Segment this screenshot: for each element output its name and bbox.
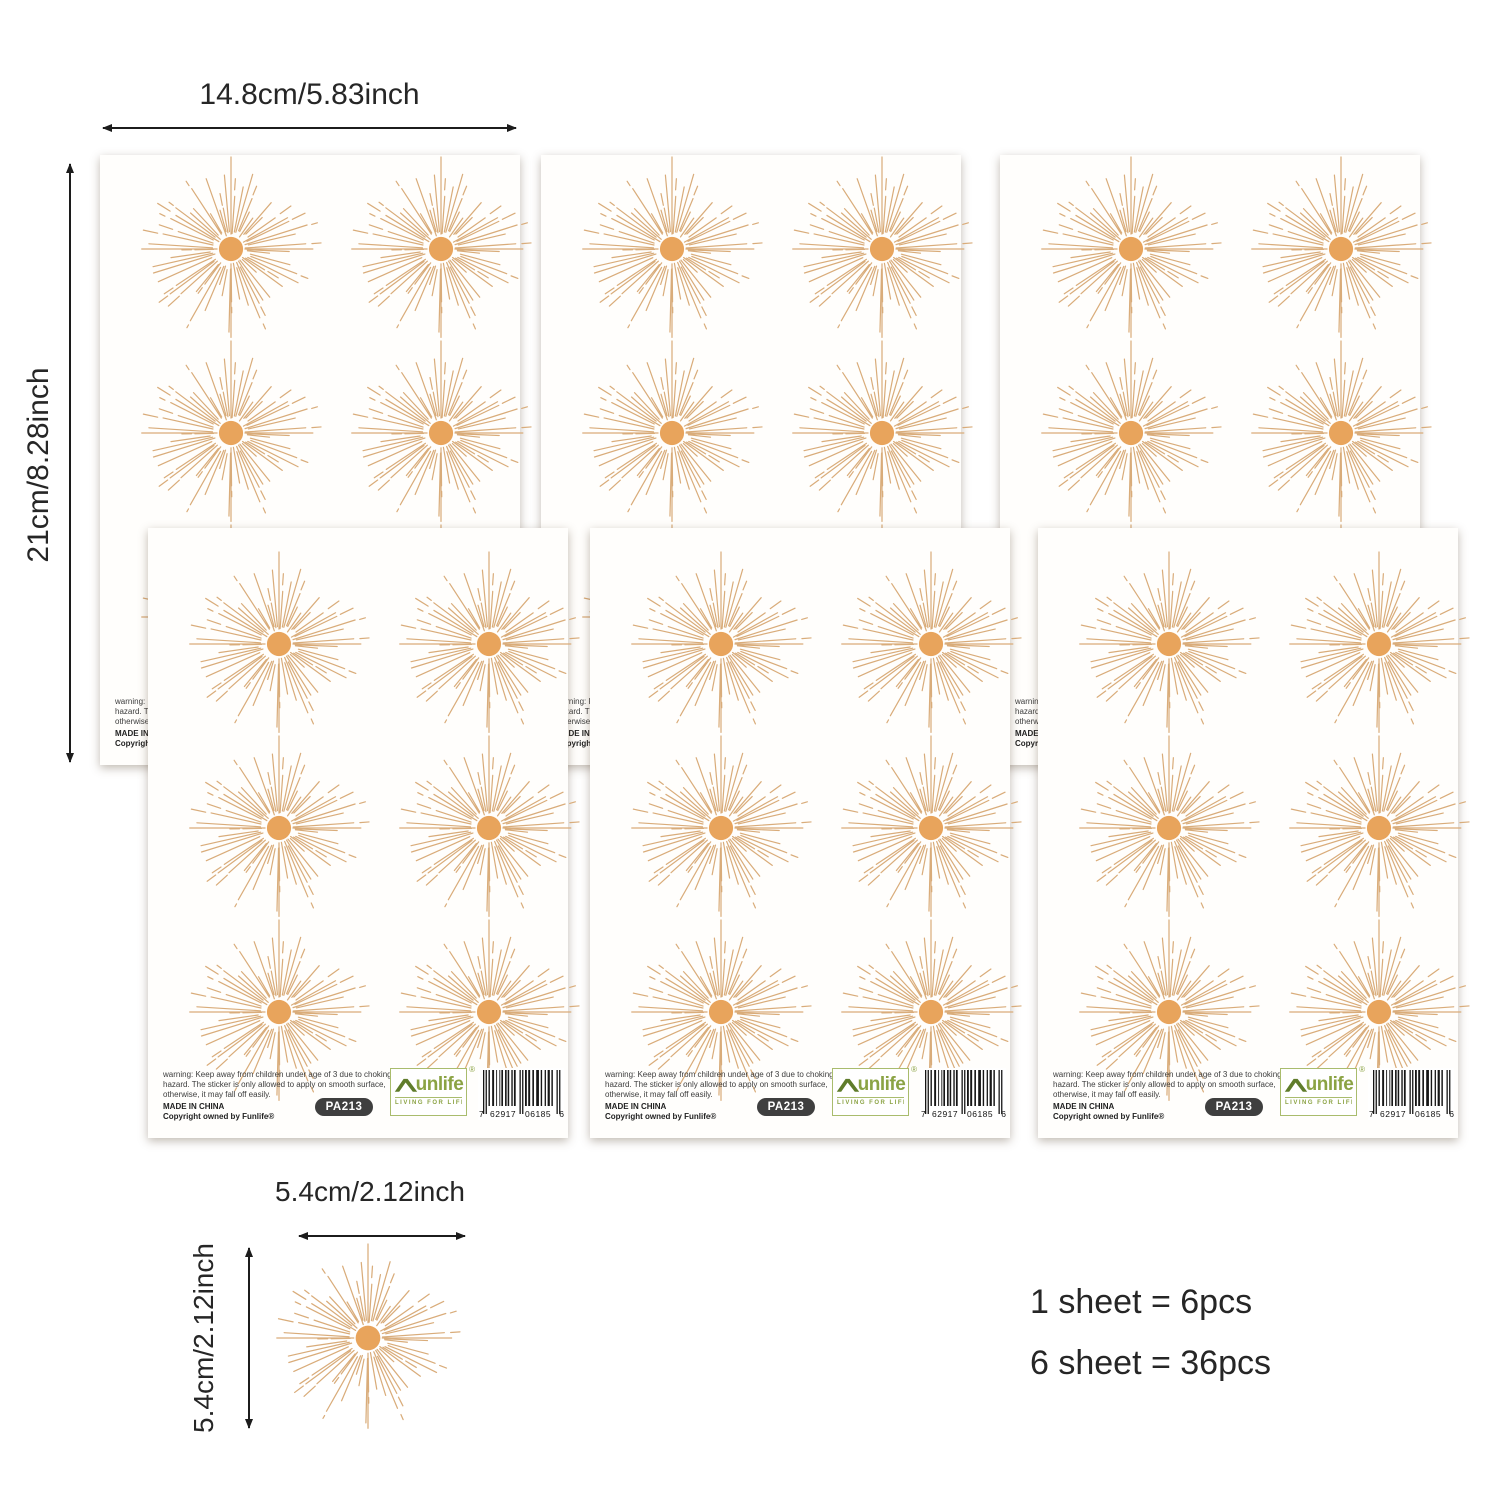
brand-name: unlife [416,1075,464,1094]
sunburst-sticker [838,551,1024,737]
sticker-width-dimension-label: 5.4cm/2.12inch [255,1176,485,1208]
sunburst-sticker [1038,156,1224,342]
brand-name: unlife [858,1075,906,1094]
warning-line: hazard. The sticker is only allowed to a… [1053,1080,1282,1090]
funlife-logo: ® unlife LIVING FOR LIFE [390,1068,467,1116]
roof-icon [836,1076,860,1093]
sunburst-sticker [396,551,582,737]
sunburst-sticker [348,340,534,526]
sunburst-sticker [186,735,372,921]
sticker-sheet: warning: Keep away from children under a… [148,528,568,1138]
brand-tagline: LIVING FOR LIFE [395,1097,462,1106]
roof-icon [394,1076,418,1093]
sunburst-sticker [1286,735,1472,921]
warning-line: warning: Keep away from children under a… [163,1070,392,1080]
sheet-count-line-2: 6 sheet = 36pcs [1030,1333,1271,1394]
sku-badge: PA213 [1205,1098,1263,1116]
warning-line: hazard. The sticker is only allowed to a… [605,1080,834,1090]
sunburst-sticker [138,156,324,342]
brand-name: unlife [1306,1075,1354,1094]
barcode-digits: 7 62917 06185 6 [1368,1109,1454,1119]
sku-badge: PA213 [315,1098,373,1116]
sunburst-sticker [1076,735,1262,921]
barcode: 7 62917 06185 6 [1368,1068,1454,1120]
warning-line: warning: Keep away from children under a… [605,1070,834,1080]
funlife-logo: ® unlife LIVING FOR LIFE [832,1068,909,1116]
sunburst-sticker [579,340,765,526]
barcode: 7 62917 06185 6 [478,1068,564,1120]
sticker-width-arrow [299,1235,465,1237]
sticker-height-arrow [248,1248,250,1428]
single-sunburst-sticker [273,1243,463,1433]
sunburst-sticker [1248,340,1434,526]
sunburst-sticker [1076,551,1262,737]
sticker-sheet: warning: Keep away from children under a… [590,528,1010,1138]
sunburst-sticker [1248,156,1434,342]
sunburst-sticker [186,551,372,737]
pack-quantity-text: 1 sheet = 6pcs 6 sheet = 36pcs [1030,1272,1271,1393]
sunburst-sticker [138,340,324,526]
sheet-width-arrow [103,127,516,129]
sunburst-sticker [348,156,534,342]
sunburst-sticker [838,735,1024,921]
barcode-digits: 7 62917 06185 6 [920,1109,1006,1119]
sunburst-sticker [789,156,975,342]
sunburst-sticker [396,735,582,921]
sheet-height-dimension-label: 21cm/8.28inch [22,277,58,653]
sunburst-sticker [1286,551,1472,737]
registered-mark: ® [1359,1065,1365,1074]
product-image: 14.8cm/5.83inch 21cm/8.28inch warning: K… [0,0,1500,1500]
warning-line: warning: Keep away from children under a… [1053,1070,1282,1080]
sku-badge: PA213 [757,1098,815,1116]
sunburst-sticker [628,735,814,921]
barcode: 7 62917 06185 6 [920,1068,1006,1120]
brand-tagline: LIVING FOR LIFE [1285,1097,1352,1106]
brand-tagline: LIVING FOR LIFE [837,1097,904,1106]
sunburst-sticker [1038,340,1224,526]
barcode-digits: 7 62917 06185 6 [478,1109,564,1119]
roof-icon [1284,1076,1308,1093]
registered-mark: ® [469,1065,475,1074]
registered-mark: ® [911,1065,917,1074]
sticker-sheet: warning: Keep away from children under a… [1038,528,1458,1138]
sheet-count-line-1: 1 sheet = 6pcs [1030,1272,1271,1333]
sticker-height-dimension-label: 5.4cm/2.12inch [188,1223,218,1453]
sheet-width-dimension-label: 14.8cm/5.83inch [103,78,516,112]
funlife-logo: ® unlife LIVING FOR LIFE [1280,1068,1357,1116]
sheet-height-arrow [69,164,71,762]
sunburst-sticker [579,156,765,342]
sunburst-sticker [789,340,975,526]
warning-line: hazard. The sticker is only allowed to a… [163,1080,392,1090]
sunburst-sticker [628,551,814,737]
